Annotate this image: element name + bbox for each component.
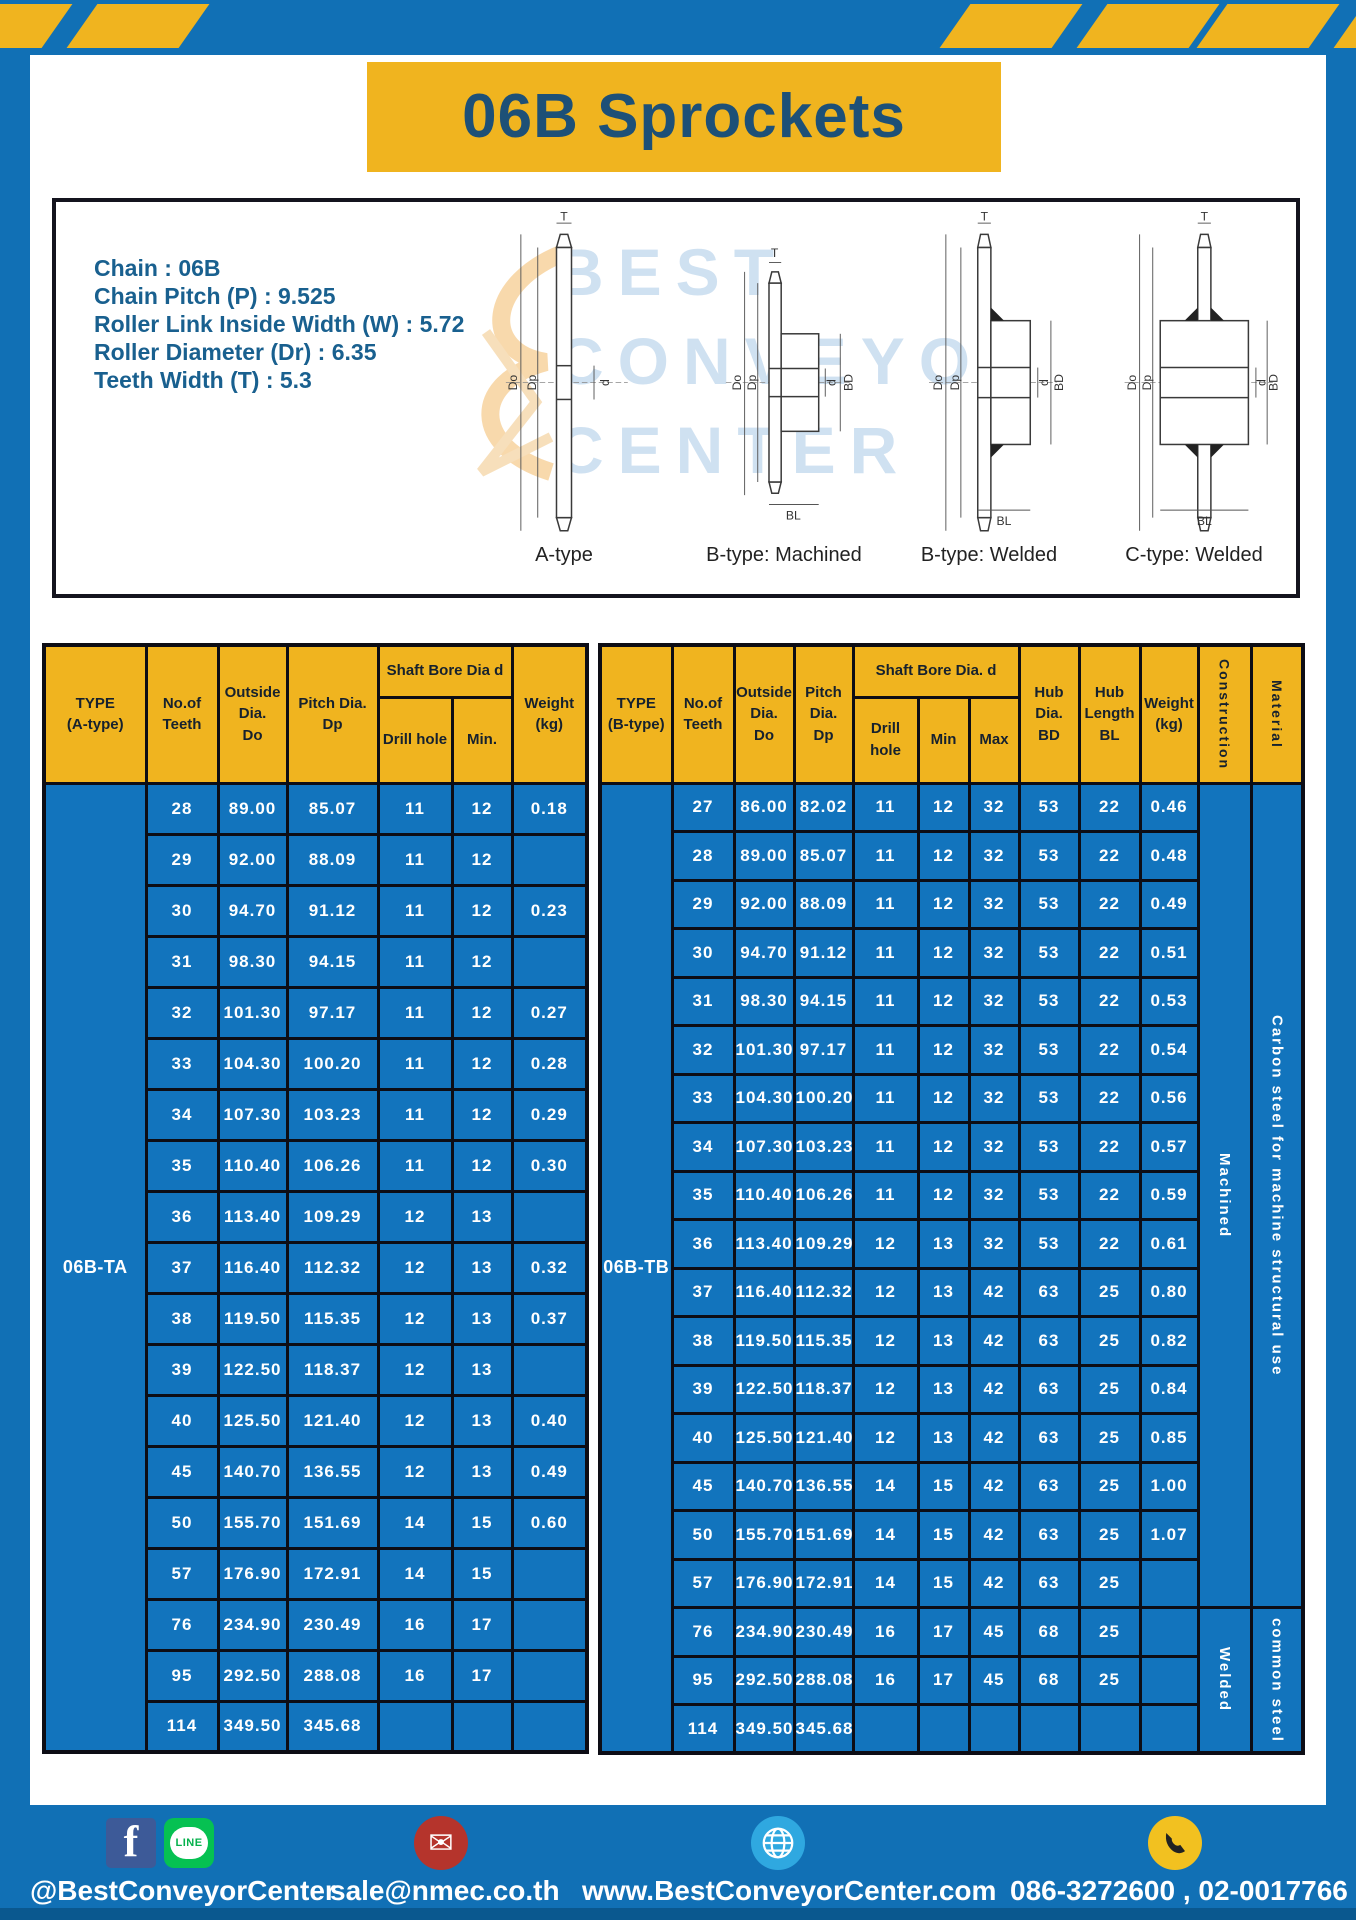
table-cell	[512, 1344, 587, 1395]
table-cell: 53	[1019, 880, 1079, 929]
table-cell: 53	[1019, 832, 1079, 881]
table-cell: 136.55	[794, 1462, 853, 1511]
table-cell: 100.20	[287, 1038, 378, 1089]
line-badge: LINE	[170, 1827, 208, 1859]
table-cell: 25	[1079, 1511, 1140, 1560]
table-cell: 53	[1019, 1026, 1079, 1075]
table-cell: 85.07	[287, 783, 378, 834]
table-cell: 11	[853, 880, 918, 929]
dim-label-do: Do	[1125, 375, 1139, 391]
col-header-pitch-dia: Pitch Dia. Dp	[794, 645, 853, 783]
table-cell: 0.51	[1140, 929, 1198, 978]
table-cell: 27	[672, 783, 734, 832]
table-cell: 95	[672, 1656, 734, 1705]
table-cell: 100.20	[794, 1074, 853, 1123]
table-cell: 92.00	[734, 880, 794, 929]
table-cell: 11	[378, 1038, 452, 1089]
table-cell: 11	[378, 834, 452, 885]
table-cell: 230.49	[794, 1608, 853, 1657]
table-cell: 38	[146, 1293, 218, 1344]
globe-icon[interactable]	[751, 1816, 805, 1870]
dim-label-bl: BL	[786, 508, 801, 522]
col-header-type: TYPE (A-type)	[44, 645, 146, 783]
table-cell: 288.08	[287, 1650, 378, 1701]
col-header-material: Material	[1251, 645, 1303, 783]
table-cell: 39	[146, 1344, 218, 1395]
table-cell: 97.17	[794, 1026, 853, 1075]
table-cell: 101.30	[218, 987, 287, 1038]
table-cell: 32	[969, 880, 1019, 929]
table-cell: 345.68	[794, 1705, 853, 1754]
table-cell: 12	[378, 1446, 452, 1497]
table-cell: 13	[452, 1191, 512, 1242]
table-cell: 32	[969, 832, 1019, 881]
table-cell: 45	[969, 1608, 1019, 1657]
table-row: 34107.30103.2311123253220.57	[600, 1123, 1303, 1172]
table-row: 2992.0088.0911123253220.49	[600, 880, 1303, 929]
table-cell: 45	[672, 1462, 734, 1511]
table-cell	[452, 1701, 512, 1752]
table-cell: 288.08	[794, 1656, 853, 1705]
table-row: 3198.3094.1511123253220.53	[600, 977, 1303, 1026]
col-header-outside-dia: Outside Dia. Do	[734, 645, 794, 783]
dim-label-d: d	[1037, 379, 1051, 386]
table-cell: 22	[1079, 880, 1140, 929]
table-cell: 88.09	[794, 880, 853, 929]
col-header-weight: Weight (kg)	[1140, 645, 1198, 783]
table-cell: 30	[146, 885, 218, 936]
sprocket-section-drawing: Do Dp d T	[479, 210, 649, 542]
table-cell: 53	[1019, 977, 1079, 1026]
social-handle[interactable]: @BestConveyorCenter	[30, 1875, 290, 1907]
table-cell: 107.30	[218, 1089, 287, 1140]
table-cell: 12	[378, 1191, 452, 1242]
dim-label-t: T	[1201, 210, 1209, 223]
table-cell: 32	[969, 929, 1019, 978]
table-cell: 31	[146, 936, 218, 987]
email-icon[interactable]: ✉	[414, 1816, 468, 1870]
table-cell: 12	[378, 1395, 452, 1446]
stripe-decoration	[940, 4, 1083, 48]
table-cell: 29	[672, 880, 734, 929]
table-cell: 13	[918, 1317, 969, 1366]
table-cell: 92.00	[218, 834, 287, 885]
table-cell: 104.30	[734, 1074, 794, 1123]
table-cell: 15	[918, 1462, 969, 1511]
table-row: 45140.70136.5514154263251.00	[600, 1462, 1303, 1511]
table-cell: 63	[1019, 1559, 1079, 1608]
dim-label-dp: Dp	[948, 375, 962, 391]
table-cell: 11	[853, 832, 918, 881]
table-row: 35110.40106.2611123253220.59	[600, 1171, 1303, 1220]
table-cell: 22	[1079, 1123, 1140, 1172]
table-a-body: 06B-TA2889.0085.0711120.182992.0088.0911…	[44, 783, 587, 1752]
table-cell: 121.40	[287, 1395, 378, 1446]
table-cell: 13	[918, 1220, 969, 1269]
table-cell: 11	[853, 1171, 918, 1220]
table-b-body: 06B-TB2786.0082.0211123253220.46Machined…	[600, 783, 1303, 1753]
sprocket-section-drawing: Do Dp d BD BL T	[1104, 210, 1284, 542]
table-cell: 42	[969, 1268, 1019, 1317]
table-row: 2889.0085.0711123253220.48	[600, 832, 1303, 881]
table-cell: 12	[918, 1026, 969, 1075]
type-label: 06B-TB	[600, 783, 672, 1753]
table-cell: 110.40	[218, 1140, 287, 1191]
table-cell: 89.00	[734, 832, 794, 881]
stripe-decoration	[1077, 4, 1220, 48]
table-cell: 0.61	[1140, 1220, 1198, 1269]
table-cell: 0.84	[1140, 1365, 1198, 1414]
table-cell: 42	[969, 1414, 1019, 1463]
website-url[interactable]: www.BestConveyorCenter.com	[582, 1875, 974, 1907]
table-cell: 119.50	[218, 1293, 287, 1344]
dim-label-dp: Dp	[1140, 375, 1154, 391]
table-cell: 34	[146, 1089, 218, 1140]
dim-label-bd: BD	[1266, 374, 1280, 391]
table-cell: 50	[146, 1497, 218, 1548]
table-cell: 36	[146, 1191, 218, 1242]
table-cell: 45	[146, 1446, 218, 1497]
table-cell: 101.30	[734, 1026, 794, 1075]
table-cell: 0.56	[1140, 1074, 1198, 1123]
table-cell: 114	[672, 1705, 734, 1754]
table-cell: 53	[1019, 1171, 1079, 1220]
table-cell: 25	[1079, 1656, 1140, 1705]
table-cell: 12	[378, 1293, 452, 1344]
table-cell: 0.32	[512, 1242, 587, 1293]
table-cell: 1.07	[1140, 1511, 1198, 1560]
col-header-min: Min	[918, 697, 969, 783]
table-cell: 97.17	[287, 987, 378, 1038]
spec-line: Chain : 06B	[94, 254, 464, 282]
table-cell: 109.29	[794, 1220, 853, 1269]
facebook-icon[interactable]: f	[106, 1818, 156, 1868]
table-cell: 12	[452, 834, 512, 885]
table-row: 50155.70151.6914154263251.07	[600, 1511, 1303, 1560]
type-label: 06B-TA	[44, 783, 146, 1752]
table-cell: 16	[378, 1650, 452, 1701]
page-title: 06B Sprockets	[367, 62, 1001, 172]
table-cell: 12	[452, 1089, 512, 1140]
table-cell: 0.28	[512, 1038, 587, 1089]
col-header-shaft-bore: Shaft Bore Dia. d	[853, 645, 1019, 697]
table-cell: 14	[853, 1559, 918, 1608]
dim-label-do: Do	[730, 375, 744, 391]
table-cell: 11	[378, 885, 452, 936]
table-cell	[512, 936, 587, 987]
table-cell: 12	[918, 1171, 969, 1220]
table-cell: 22	[1079, 1220, 1140, 1269]
table-cell: 32	[146, 987, 218, 1038]
table-row: 40125.50121.4012134263250.85	[600, 1414, 1303, 1463]
table-cell: 12	[918, 880, 969, 929]
table-cell: 63	[1019, 1317, 1079, 1366]
table-cell: 109.29	[287, 1191, 378, 1242]
table-cell: 40	[672, 1414, 734, 1463]
table-cell: 42	[969, 1462, 1019, 1511]
email-address[interactable]: sale@nmec.co.th	[330, 1875, 552, 1907]
table-cell: 0.48	[1140, 832, 1198, 881]
dim-label-t: T	[560, 210, 568, 223]
table-cell: 22	[1079, 1026, 1140, 1075]
table-cell: 11	[378, 783, 452, 834]
table-cell: 57	[672, 1559, 734, 1608]
table-cell: 35	[672, 1171, 734, 1220]
table-cell	[512, 1650, 587, 1701]
table-row: 33104.30100.2011123253220.56	[600, 1074, 1303, 1123]
table-cell: 12	[853, 1220, 918, 1269]
table-cell: 11	[378, 936, 452, 987]
table-cell: 11	[853, 977, 918, 1026]
table-cell: 113.40	[734, 1220, 794, 1269]
table-cell: 230.49	[287, 1599, 378, 1650]
table-row: 57176.90172.911415426325	[600, 1559, 1303, 1608]
table-cell: 91.12	[794, 929, 853, 978]
material-cell: common steel	[1251, 1608, 1303, 1754]
table-cell: 53	[1019, 783, 1079, 832]
spec-line: Teeth Width (T) : 5.3	[94, 366, 464, 394]
table-cell: 12	[452, 783, 512, 834]
table-cell: 140.70	[734, 1462, 794, 1511]
stripe-decoration	[67, 4, 210, 48]
table-row: 114349.50345.68	[600, 1705, 1303, 1754]
dim-label-d: d	[825, 379, 839, 386]
table-cell: 12	[378, 1344, 452, 1395]
table-cell: 12	[918, 1074, 969, 1123]
table-cell: 32	[672, 1026, 734, 1075]
table-cell: 12	[452, 885, 512, 936]
table-cell: 292.50	[218, 1650, 287, 1701]
table-cell: 15	[918, 1511, 969, 1560]
a-type-spec-table: TYPE (A-type) No.of Teeth Outside Dia. D…	[42, 643, 589, 1754]
table-cell: 94.15	[794, 977, 853, 1026]
table-cell: 94.70	[218, 885, 287, 936]
col-header-type: TYPE (B-type)	[600, 645, 672, 783]
table-cell: 32	[969, 1074, 1019, 1123]
table-cell: 12	[918, 1123, 969, 1172]
dim-label-dp: Dp	[525, 375, 539, 391]
table-cell: 12	[452, 1140, 512, 1191]
table-row: 37116.40112.3212134263250.80	[600, 1268, 1303, 1317]
table-cell: 125.50	[734, 1414, 794, 1463]
dim-label-t: T	[771, 246, 779, 260]
table-cell	[1079, 1705, 1140, 1754]
table-cell: 63	[1019, 1365, 1079, 1414]
material-cell: Carbon steel for machine structural use	[1251, 783, 1303, 1608]
table-cell: 103.23	[287, 1089, 378, 1140]
table-cell: 0.29	[512, 1089, 587, 1140]
table-cell: 1.00	[1140, 1462, 1198, 1511]
table-cell: 14	[378, 1548, 452, 1599]
table-cell: 11	[853, 783, 918, 832]
table-cell: 32	[969, 783, 1019, 832]
table-cell: 63	[1019, 1414, 1079, 1463]
phone-icon[interactable]	[1148, 1816, 1202, 1870]
figure-caption: A-type	[469, 544, 659, 567]
table-cell: 53	[1019, 1074, 1079, 1123]
table-cell: 37	[672, 1268, 734, 1317]
table-cell: 349.50	[218, 1701, 287, 1752]
table-cell: 292.50	[734, 1656, 794, 1705]
table-cell: 0.60	[512, 1497, 587, 1548]
figure-caption: B-type: Machined	[689, 544, 879, 567]
spec-line: Chain Pitch (P) : 9.525	[94, 282, 464, 310]
table-cell: 106.26	[287, 1140, 378, 1191]
table-cell: 172.91	[287, 1548, 378, 1599]
phone-numbers[interactable]: 086-3272600 , 02-0017766	[1010, 1875, 1340, 1907]
table-cell: 53	[1019, 1220, 1079, 1269]
table-cell: 0.53	[1140, 977, 1198, 1026]
table-cell: 13	[918, 1414, 969, 1463]
table-cell: 151.69	[794, 1511, 853, 1560]
table-cell: 0.57	[1140, 1123, 1198, 1172]
table-cell: 29	[146, 834, 218, 885]
dim-label-t: T	[981, 210, 989, 223]
table-cell: 345.68	[287, 1701, 378, 1752]
footer-email-section: ✉ sale@nmec.co.th	[330, 1815, 552, 1907]
table-cell: 116.40	[734, 1268, 794, 1317]
table-cell: 118.37	[794, 1365, 853, 1414]
table-cell: 25	[1079, 1559, 1140, 1608]
table-cell: 68	[1019, 1656, 1079, 1705]
table-cell: 14	[378, 1497, 452, 1548]
table-cell: 349.50	[734, 1705, 794, 1754]
table-cell: 31	[672, 977, 734, 1026]
table-cell: 42	[969, 1317, 1019, 1366]
table-cell: 42	[969, 1365, 1019, 1414]
table-cell: 37	[146, 1242, 218, 1293]
table-cell: 95	[146, 1650, 218, 1701]
table-cell: 140.70	[218, 1446, 287, 1497]
table-cell: 32	[969, 1123, 1019, 1172]
table-row: 38119.50115.3512134263250.82	[600, 1317, 1303, 1366]
table-cell: 22	[1079, 1074, 1140, 1123]
figure-caption: C-type: Welded	[1094, 544, 1294, 567]
table-cell: 12	[452, 1038, 512, 1089]
table-cell: 0.80	[1140, 1268, 1198, 1317]
table-cell: 12	[452, 936, 512, 987]
table-cell: 121.40	[794, 1414, 853, 1463]
table-cell	[1140, 1608, 1198, 1657]
table-cell: 0.59	[1140, 1171, 1198, 1220]
table-cell	[512, 1701, 587, 1752]
dim-label-bd: BD	[841, 374, 855, 391]
table-cell: 0.18	[512, 783, 587, 834]
footer-website-section: www.BestConveyorCenter.com	[582, 1815, 974, 1907]
table-row: 32101.3097.1711123253220.54	[600, 1026, 1303, 1075]
table-cell: 12	[853, 1365, 918, 1414]
table-cell: 0.30	[512, 1140, 587, 1191]
table-cell: 119.50	[734, 1317, 794, 1366]
table-cell: 0.49	[1140, 880, 1198, 929]
table-cell: 15	[452, 1548, 512, 1599]
table-row: 39122.50118.3712134263250.84	[600, 1365, 1303, 1414]
table-cell: 91.12	[287, 885, 378, 936]
table-cell: 11	[853, 929, 918, 978]
table-row: 3094.7091.1211123253220.51	[600, 929, 1303, 978]
table-cell: 16	[853, 1608, 918, 1657]
table-cell: 32	[969, 1026, 1019, 1075]
stripe-decoration	[1197, 4, 1340, 48]
title-banner: 06B Sprockets	[367, 62, 1001, 172]
figure-b-welded: Do Dp d BD BL T B-type: Welded	[894, 210, 1084, 567]
dim-label-dp: Dp	[745, 375, 759, 391]
table-cell: 86.00	[734, 783, 794, 832]
table-cell: 15	[918, 1559, 969, 1608]
table-cell: 98.30	[218, 936, 287, 987]
table-cell: 33	[146, 1038, 218, 1089]
chain-specs: Chain : 06B Chain Pitch (P) : 9.525 Roll…	[94, 254, 464, 394]
col-header-drill-hole: Drill hole	[378, 697, 452, 783]
spec-line: Roller Link Inside Width (W) : 5.72	[94, 310, 464, 338]
table-cell: 12	[853, 1317, 918, 1366]
table-cell: 0.46	[1140, 783, 1198, 832]
table-cell: 16	[378, 1599, 452, 1650]
table-cell: 0.85	[1140, 1414, 1198, 1463]
table-cell: 12	[378, 1242, 452, 1293]
table-cell: 14	[853, 1462, 918, 1511]
table-cell	[1019, 1705, 1079, 1754]
construction-cell: Machined	[1198, 783, 1251, 1608]
table-cell	[1140, 1656, 1198, 1705]
table-cell: 176.90	[734, 1559, 794, 1608]
col-header-teeth: No.of Teeth	[672, 645, 734, 783]
table-cell: 25	[1079, 1608, 1140, 1657]
table-row: 76234.90230.491617456825Weldedcommon ste…	[600, 1608, 1303, 1657]
table-cell	[512, 1548, 587, 1599]
table-cell: 35	[146, 1140, 218, 1191]
table-cell: 25	[1079, 1268, 1140, 1317]
dim-label-d: d	[598, 379, 612, 386]
table-row: 95292.50288.081617456825	[600, 1656, 1303, 1705]
table-cell: 12	[918, 832, 969, 881]
table-cell	[918, 1705, 969, 1754]
table-cell: 11	[378, 987, 452, 1038]
table-cell: 107.30	[734, 1123, 794, 1172]
b-type-spec-table: TYPE (B-type) No.of Teeth Outside Dia. D…	[598, 643, 1305, 1755]
dim-label-do: Do	[931, 375, 945, 391]
figure-c-welded: Do Dp d BD BL T C-type: Welded	[1094, 210, 1294, 567]
line-icon[interactable]: LINE	[164, 1818, 214, 1868]
table-cell: 12	[853, 1414, 918, 1463]
table-row: 06B-TB2786.0082.0211123253220.46Machined…	[600, 783, 1303, 832]
table-cell: 28	[146, 783, 218, 834]
table-cell: 25	[1079, 1414, 1140, 1463]
table-cell: 118.37	[287, 1344, 378, 1395]
table-cell: 116.40	[218, 1242, 287, 1293]
table-cell: 12	[918, 929, 969, 978]
table-cell: 88.09	[287, 834, 378, 885]
table-cell: 50	[672, 1511, 734, 1560]
table-cell: 172.91	[794, 1559, 853, 1608]
col-header-outside-dia: Outside Dia. Do	[218, 645, 287, 783]
table-cell: 22	[1079, 783, 1140, 832]
sprocket-section-drawing: Do Dp d BD BL T	[699, 210, 869, 542]
table-cell: 25	[1079, 1462, 1140, 1511]
table-cell	[512, 1599, 587, 1650]
table-cell	[512, 834, 587, 885]
table-cell: 234.90	[734, 1608, 794, 1657]
col-header-shaft-bore: Shaft Bore Dia d	[378, 645, 512, 697]
table-cell: 12	[918, 977, 969, 1026]
table-cell: 94.15	[287, 936, 378, 987]
figure-a-type: Do Dp d T A-type	[469, 210, 659, 567]
table-cell: 98.30	[734, 977, 794, 1026]
table-cell: 112.32	[287, 1242, 378, 1293]
table-cell: 11	[378, 1140, 452, 1191]
table-cell: 0.54	[1140, 1026, 1198, 1075]
table-cell: 36	[672, 1220, 734, 1269]
